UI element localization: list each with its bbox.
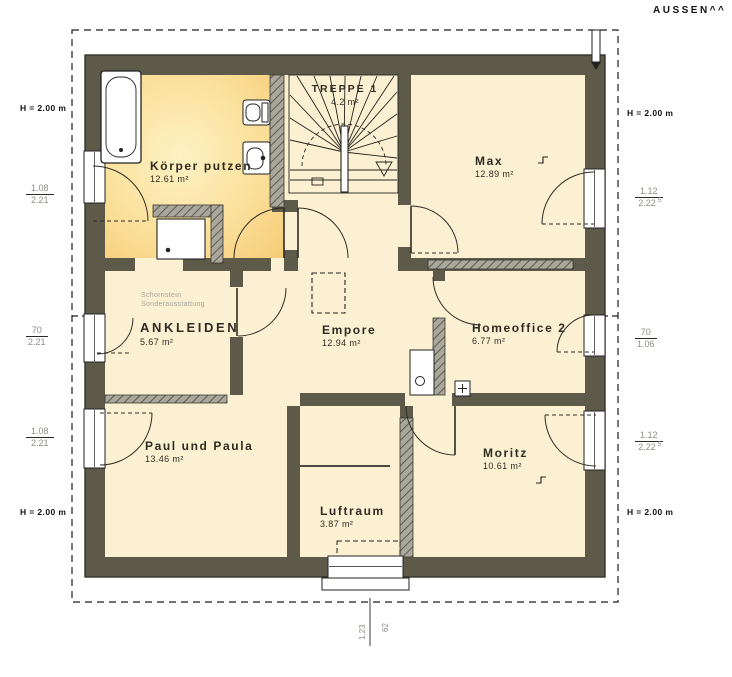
height-mark-left-top: H = 2.00 m — [20, 103, 66, 113]
room-name: Moritz — [483, 447, 528, 460]
room-label-bath: Körper putzen 12.61 m² — [150, 160, 252, 185]
room-area: 4.2 m² — [298, 97, 392, 107]
room-area: 3.87 m² — [320, 519, 385, 529]
room-name: Körper putzen — [150, 160, 252, 173]
annotation-line2: Sonderausstattung — [141, 300, 205, 309]
dim-superscript: 5 — [658, 441, 662, 449]
vent-symbol — [455, 381, 470, 396]
room-name: Luftraum — [320, 505, 385, 518]
height-mark-left-bottom: H = 2.00 m — [20, 507, 66, 517]
dim-numerator: 1.08 — [26, 183, 54, 195]
height-mark-right-top: H = 2.00 m — [627, 108, 673, 118]
dimension-right-3: 1.12 2.225 — [635, 430, 663, 454]
dim-denominator: 1.06 — [635, 339, 657, 350]
toilet — [243, 100, 270, 125]
dim-numerator: 70 — [26, 325, 48, 337]
roof-drain-pipe — [591, 30, 601, 70]
dimension-left-1: 1.08 2.21 — [26, 183, 54, 207]
dim-denominator: 2.21 — [29, 438, 51, 449]
dim-denominator: 2.22 — [636, 442, 658, 453]
room-name: Max — [475, 155, 514, 168]
room-area: 13.46 m² — [145, 454, 253, 464]
room-area: 6.77 m² — [472, 336, 567, 346]
room-name: Homeoffice 2 — [472, 322, 567, 335]
outside-label: AUSSEN^^ — [653, 5, 726, 16]
room-area: 12.61 m² — [150, 174, 252, 184]
room-label-moritz: Moritz 10.61 m² — [483, 447, 528, 472]
annotation-line1: Schornstein — [141, 291, 205, 300]
dim-numerator: 70 — [635, 327, 657, 339]
shower — [153, 205, 223, 263]
dim-denominator: 2.21 — [26, 337, 48, 348]
bottom-dimension-offset: 62 — [381, 623, 390, 632]
dim-superscript: 5 — [658, 197, 662, 205]
room-area: 12.94 m² — [322, 338, 376, 348]
floorplan-page: AUSSEN^^ Körper putzen 12.61 m² TREPPE 1… — [0, 0, 732, 677]
dimension-right-2: 70 1.06 — [635, 327, 657, 351]
room-name: TREPPE 1 — [298, 84, 392, 96]
shaft-symbol — [410, 350, 434, 395]
dimension-right-1: 1.12 2.225 — [635, 186, 663, 210]
room-label-luftraum: Luftraum 3.87 m² — [320, 505, 385, 530]
dim-denominator: 2.21 — [29, 195, 51, 206]
room-area: 12.89 m² — [475, 169, 514, 179]
height-mark-right-bottom: H = 2.00 m — [627, 507, 673, 517]
room-label-stairs: TREPPE 1 4.2 m² — [298, 84, 392, 107]
room-label-homeoffice: Homeoffice 2 6.77 m² — [472, 322, 567, 347]
room-label-empore: Empore 12.94 m² — [322, 324, 376, 349]
room-label-max: Max 12.89 m² — [475, 155, 514, 180]
room-name: ANKLEIDEN — [140, 321, 239, 336]
dimension-left-3: 1.08 2.21 — [26, 426, 54, 450]
bathtub — [101, 71, 141, 163]
dim-denominator: 2.22 — [636, 198, 658, 209]
dim-numerator: 1.08 — [26, 426, 54, 438]
dimension-left-2: 70 2.21 — [26, 325, 48, 349]
room-label-paul: Paul und Paula 13.46 m² — [145, 440, 253, 465]
annotation-note: Schornstein Sonderausstattung — [141, 291, 205, 310]
bottom-dimension-width: 1.23 — [358, 624, 367, 640]
room-area: 5.67 m² — [140, 337, 239, 347]
room-area: 10.61 m² — [483, 461, 528, 471]
room-name: Empore — [322, 324, 376, 337]
room-label-ankleiden: ANKLEIDEN 5.67 m² — [140, 321, 239, 347]
room-name: Paul und Paula — [145, 440, 253, 453]
